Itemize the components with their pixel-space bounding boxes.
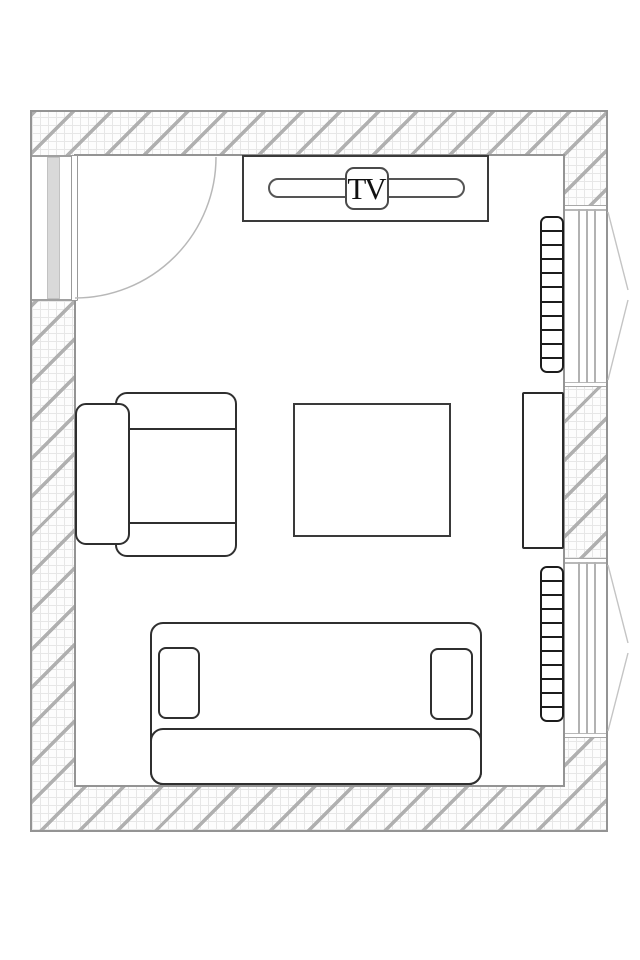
tv-label: TV <box>347 173 384 204</box>
radiator-segment <box>542 331 562 345</box>
window-top <box>565 205 606 387</box>
wall-outline: TV <box>30 110 608 832</box>
radiator-bottom <box>540 566 564 722</box>
radiator-top <box>540 216 564 373</box>
radiator-segment <box>542 345 562 359</box>
armchair-armrest-line <box>117 522 235 524</box>
radiator-segment <box>542 260 562 274</box>
sofa-cushion-right <box>430 648 473 720</box>
cabinet <box>522 392 564 549</box>
window-glass-line <box>594 209 596 383</box>
radiator-segment <box>542 568 562 582</box>
radiator-segment <box>542 596 562 610</box>
tv-set: TV <box>345 167 389 210</box>
sofa-seat <box>150 728 482 785</box>
window-bottom <box>565 558 606 738</box>
radiator-segment <box>542 694 562 708</box>
radiator-segment <box>542 359 562 371</box>
window-glass-line <box>586 562 588 734</box>
sofa-cushion-left <box>158 647 200 719</box>
radiator-segment <box>542 680 562 694</box>
radiator-segment <box>542 274 562 288</box>
window-bottom-swing-symbol <box>608 565 628 731</box>
window-glass-line <box>586 209 588 383</box>
door-leaf <box>71 155 78 301</box>
window-glass-line <box>594 562 596 734</box>
radiator-segment <box>542 288 562 302</box>
radiator-segment <box>542 232 562 246</box>
armchair <box>115 392 237 557</box>
floor-plan: TV <box>0 0 640 960</box>
radiator-segment <box>542 708 562 720</box>
armchair-armrest-line <box>117 428 235 430</box>
armchair-backrest <box>75 403 130 545</box>
door-pocket <box>47 157 60 299</box>
window-top-swing-symbol <box>608 212 628 380</box>
tv-stand: TV <box>242 155 489 222</box>
radiator-segment <box>542 303 562 317</box>
radiator-segment <box>542 638 562 652</box>
radiator-segment <box>542 610 562 624</box>
window-glass-line <box>578 209 580 383</box>
radiator-segment <box>542 582 562 596</box>
radiator-segment <box>542 666 562 680</box>
radiator-segment <box>542 218 562 232</box>
radiator-segment <box>542 652 562 666</box>
radiator-segment <box>542 317 562 331</box>
radiator-segment <box>542 246 562 260</box>
coffee-table <box>293 403 451 537</box>
window-glass-line <box>578 562 580 734</box>
radiator-segment <box>542 624 562 638</box>
